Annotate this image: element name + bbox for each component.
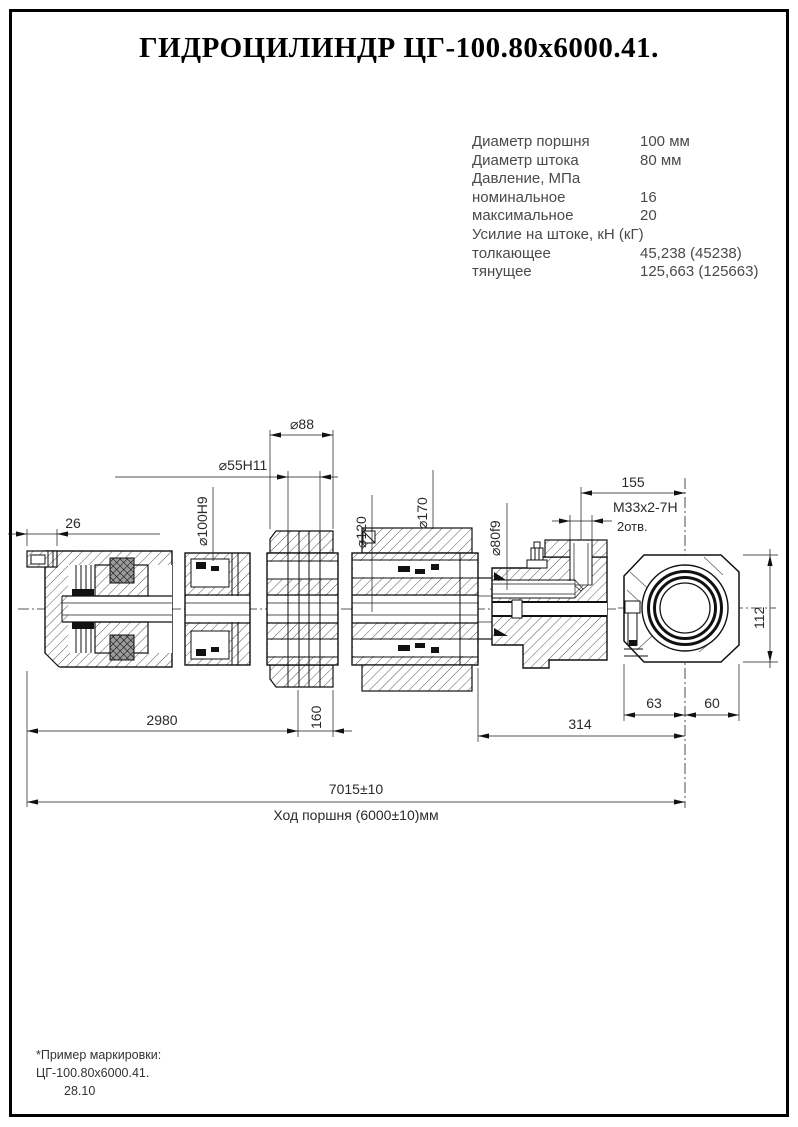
cylinder-head-section — [352, 528, 478, 691]
piston-rod — [478, 578, 493, 639]
dim-label-total: 7015±10 — [329, 781, 384, 797]
dim-head-170: ⌀170 — [414, 470, 433, 529]
hydraulic-cylinder-drawing: 26 ⌀100H9 ⌀55H11 ⌀88 — [0, 0, 798, 1127]
marking-example: ЦГ-100.80х6000.41. — [36, 1064, 161, 1082]
dim-bore-100h9: ⌀100H9 — [194, 487, 213, 561]
marking-note: *Пример маркировки: ЦГ-100.80х6000.41. 2… — [36, 1046, 161, 1100]
dim-label-88: ⌀88 — [290, 416, 314, 432]
piston-section — [185, 553, 250, 665]
mounting-eye-end-view — [624, 555, 739, 662]
dim-chain-2980-160: 2980 160 — [27, 671, 352, 807]
dim-label-26: 26 — [65, 515, 81, 531]
dim-total-length: 7015±10 Ход поршня (6000±10)мм — [27, 781, 685, 823]
marking-note-title: *Пример маркировки: — [36, 1046, 161, 1064]
dim-label-55h11: ⌀55H11 — [219, 457, 268, 473]
dim-plug-26: 26 — [8, 515, 160, 546]
dim-label-160: 160 — [308, 705, 324, 729]
dim-label-112: 112 — [751, 606, 767, 629]
dim-boss-88: ⌀88 — [270, 416, 333, 529]
dim-label-thread: М33х2-7Н — [613, 499, 678, 515]
dim-label-80f9: ⌀80f9 — [487, 520, 503, 556]
dim-label-63: 63 — [646, 695, 662, 711]
dim-label-170: ⌀170 — [414, 497, 430, 529]
guide-ring-section — [267, 531, 338, 687]
drawing-sheet: ГИДРОЦИЛИНДР ЦГ-100.80х6000.41. Диаметр … — [0, 0, 798, 1127]
dim-label-120: ⌀120 — [353, 516, 369, 548]
dim-label-holes: 2отв. — [617, 519, 648, 534]
dim-label-100h9: ⌀100H9 — [194, 496, 210, 546]
dim-label-155: 155 — [621, 474, 645, 490]
rod-end-section — [492, 540, 607, 668]
left-end-cap-section — [27, 551, 172, 668]
dim-chain-63-60: 63 60 — [624, 664, 739, 721]
dim-label-2980: 2980 — [146, 712, 177, 728]
drain-plug — [27, 551, 57, 567]
dim-rod-bore-55h11: ⌀55H11 — [115, 457, 338, 531]
dim-eye-112: 112 — [743, 549, 778, 668]
dim-port-155: 155 М33х2-7Н 2отв. — [552, 474, 685, 540]
marking-code: 28.10 — [64, 1082, 161, 1100]
dim-label-60: 60 — [704, 695, 720, 711]
dim-label-314: 314 — [568, 716, 592, 732]
air-bleed-valve — [527, 542, 547, 568]
dim-label-stroke: Ход поршня (6000±10)мм — [273, 807, 438, 823]
